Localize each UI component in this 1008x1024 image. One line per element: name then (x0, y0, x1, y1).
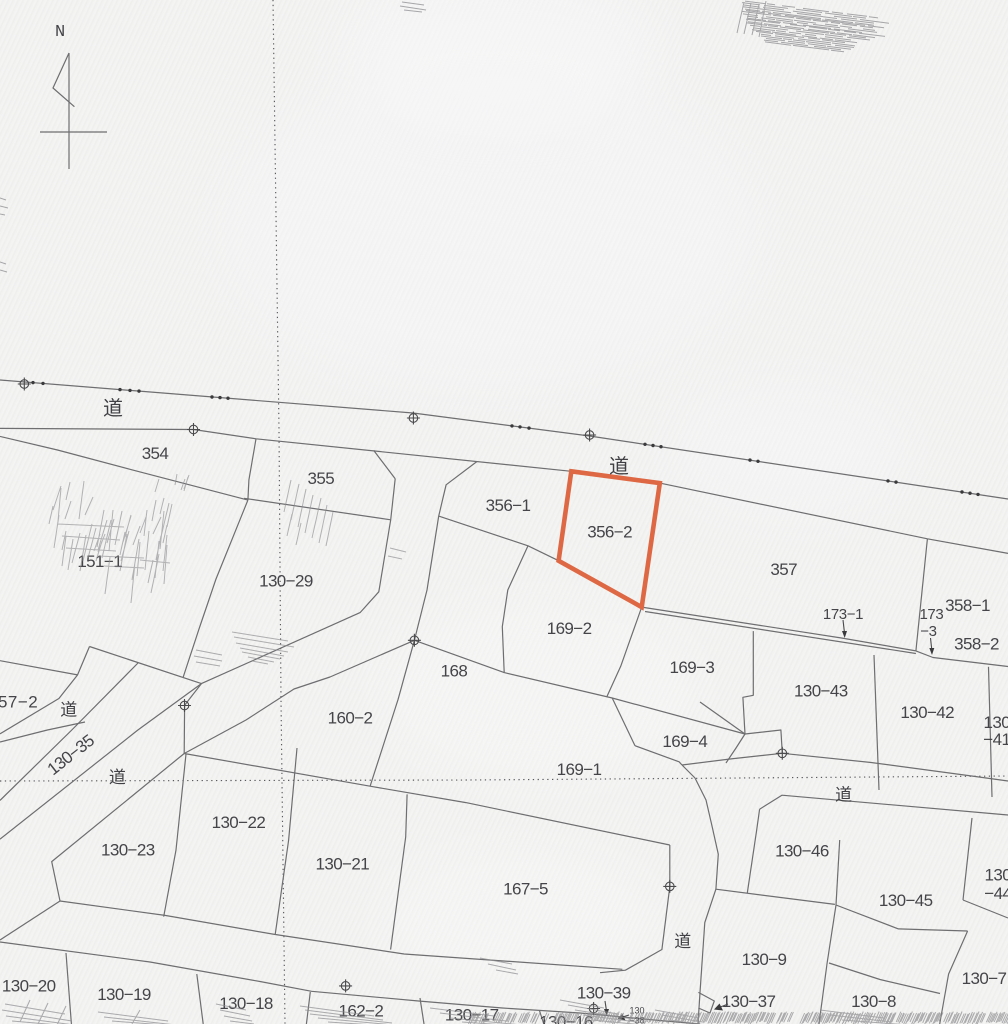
svg-text:130−37: 130−37 (722, 992, 776, 1011)
svg-text:N: N (55, 23, 65, 42)
svg-text:355: 355 (308, 469, 335, 488)
svg-text:169−4: 169−4 (662, 732, 707, 751)
svg-text:356−2: 356−2 (587, 523, 632, 542)
svg-text:−44: −44 (984, 884, 1008, 903)
svg-text:130: 130 (985, 865, 1008, 884)
svg-text:130−8: 130−8 (851, 992, 896, 1011)
svg-text:130−21: 130−21 (315, 855, 369, 874)
svg-text:−41: −41 (983, 730, 1008, 749)
svg-text:−3: −3 (920, 623, 936, 640)
svg-text:130−20: 130−20 (2, 977, 56, 996)
svg-text:169−3: 169−3 (670, 658, 715, 677)
svg-text:168: 168 (441, 662, 468, 681)
svg-text:356−1: 356−1 (486, 496, 531, 515)
svg-text:358−1: 358−1 (945, 596, 990, 615)
svg-text:130−43: 130−43 (794, 682, 848, 701)
svg-text:道: 道 (103, 397, 123, 420)
svg-text:道: 道 (109, 768, 126, 787)
svg-text:130−42: 130−42 (900, 703, 954, 722)
svg-text:169−2: 169−2 (547, 619, 592, 638)
svg-text:130−22: 130−22 (212, 813, 266, 832)
svg-text:道: 道 (835, 786, 852, 805)
svg-text:130−39: 130−39 (577, 984, 631, 1003)
svg-text:358−2: 358−2 (954, 635, 999, 654)
svg-text:130−29: 130−29 (259, 572, 313, 591)
svg-text:130−19: 130−19 (97, 985, 151, 1004)
svg-text:130−23: 130−23 (101, 840, 155, 859)
svg-text:130−46: 130−46 (775, 842, 829, 861)
svg-text:354: 354 (142, 444, 169, 463)
svg-text:130−35: 130−35 (44, 731, 98, 779)
svg-text:167−5: 167−5 (503, 880, 548, 899)
svg-text:160−2: 160−2 (328, 708, 373, 727)
svg-text:173: 173 (919, 606, 943, 623)
svg-text:157−2: 157−2 (0, 692, 38, 711)
svg-text:道: 道 (609, 455, 629, 478)
svg-text:130−45: 130−45 (879, 891, 933, 910)
svg-text:169−1: 169−1 (557, 760, 602, 779)
svg-text:130−7: 130−7 (962, 969, 1007, 988)
svg-text:357: 357 (770, 560, 797, 579)
svg-text:130−18: 130−18 (219, 994, 273, 1013)
svg-text:130−9: 130−9 (742, 950, 787, 969)
svg-text:道: 道 (674, 932, 691, 951)
svg-text:道: 道 (60, 701, 77, 720)
